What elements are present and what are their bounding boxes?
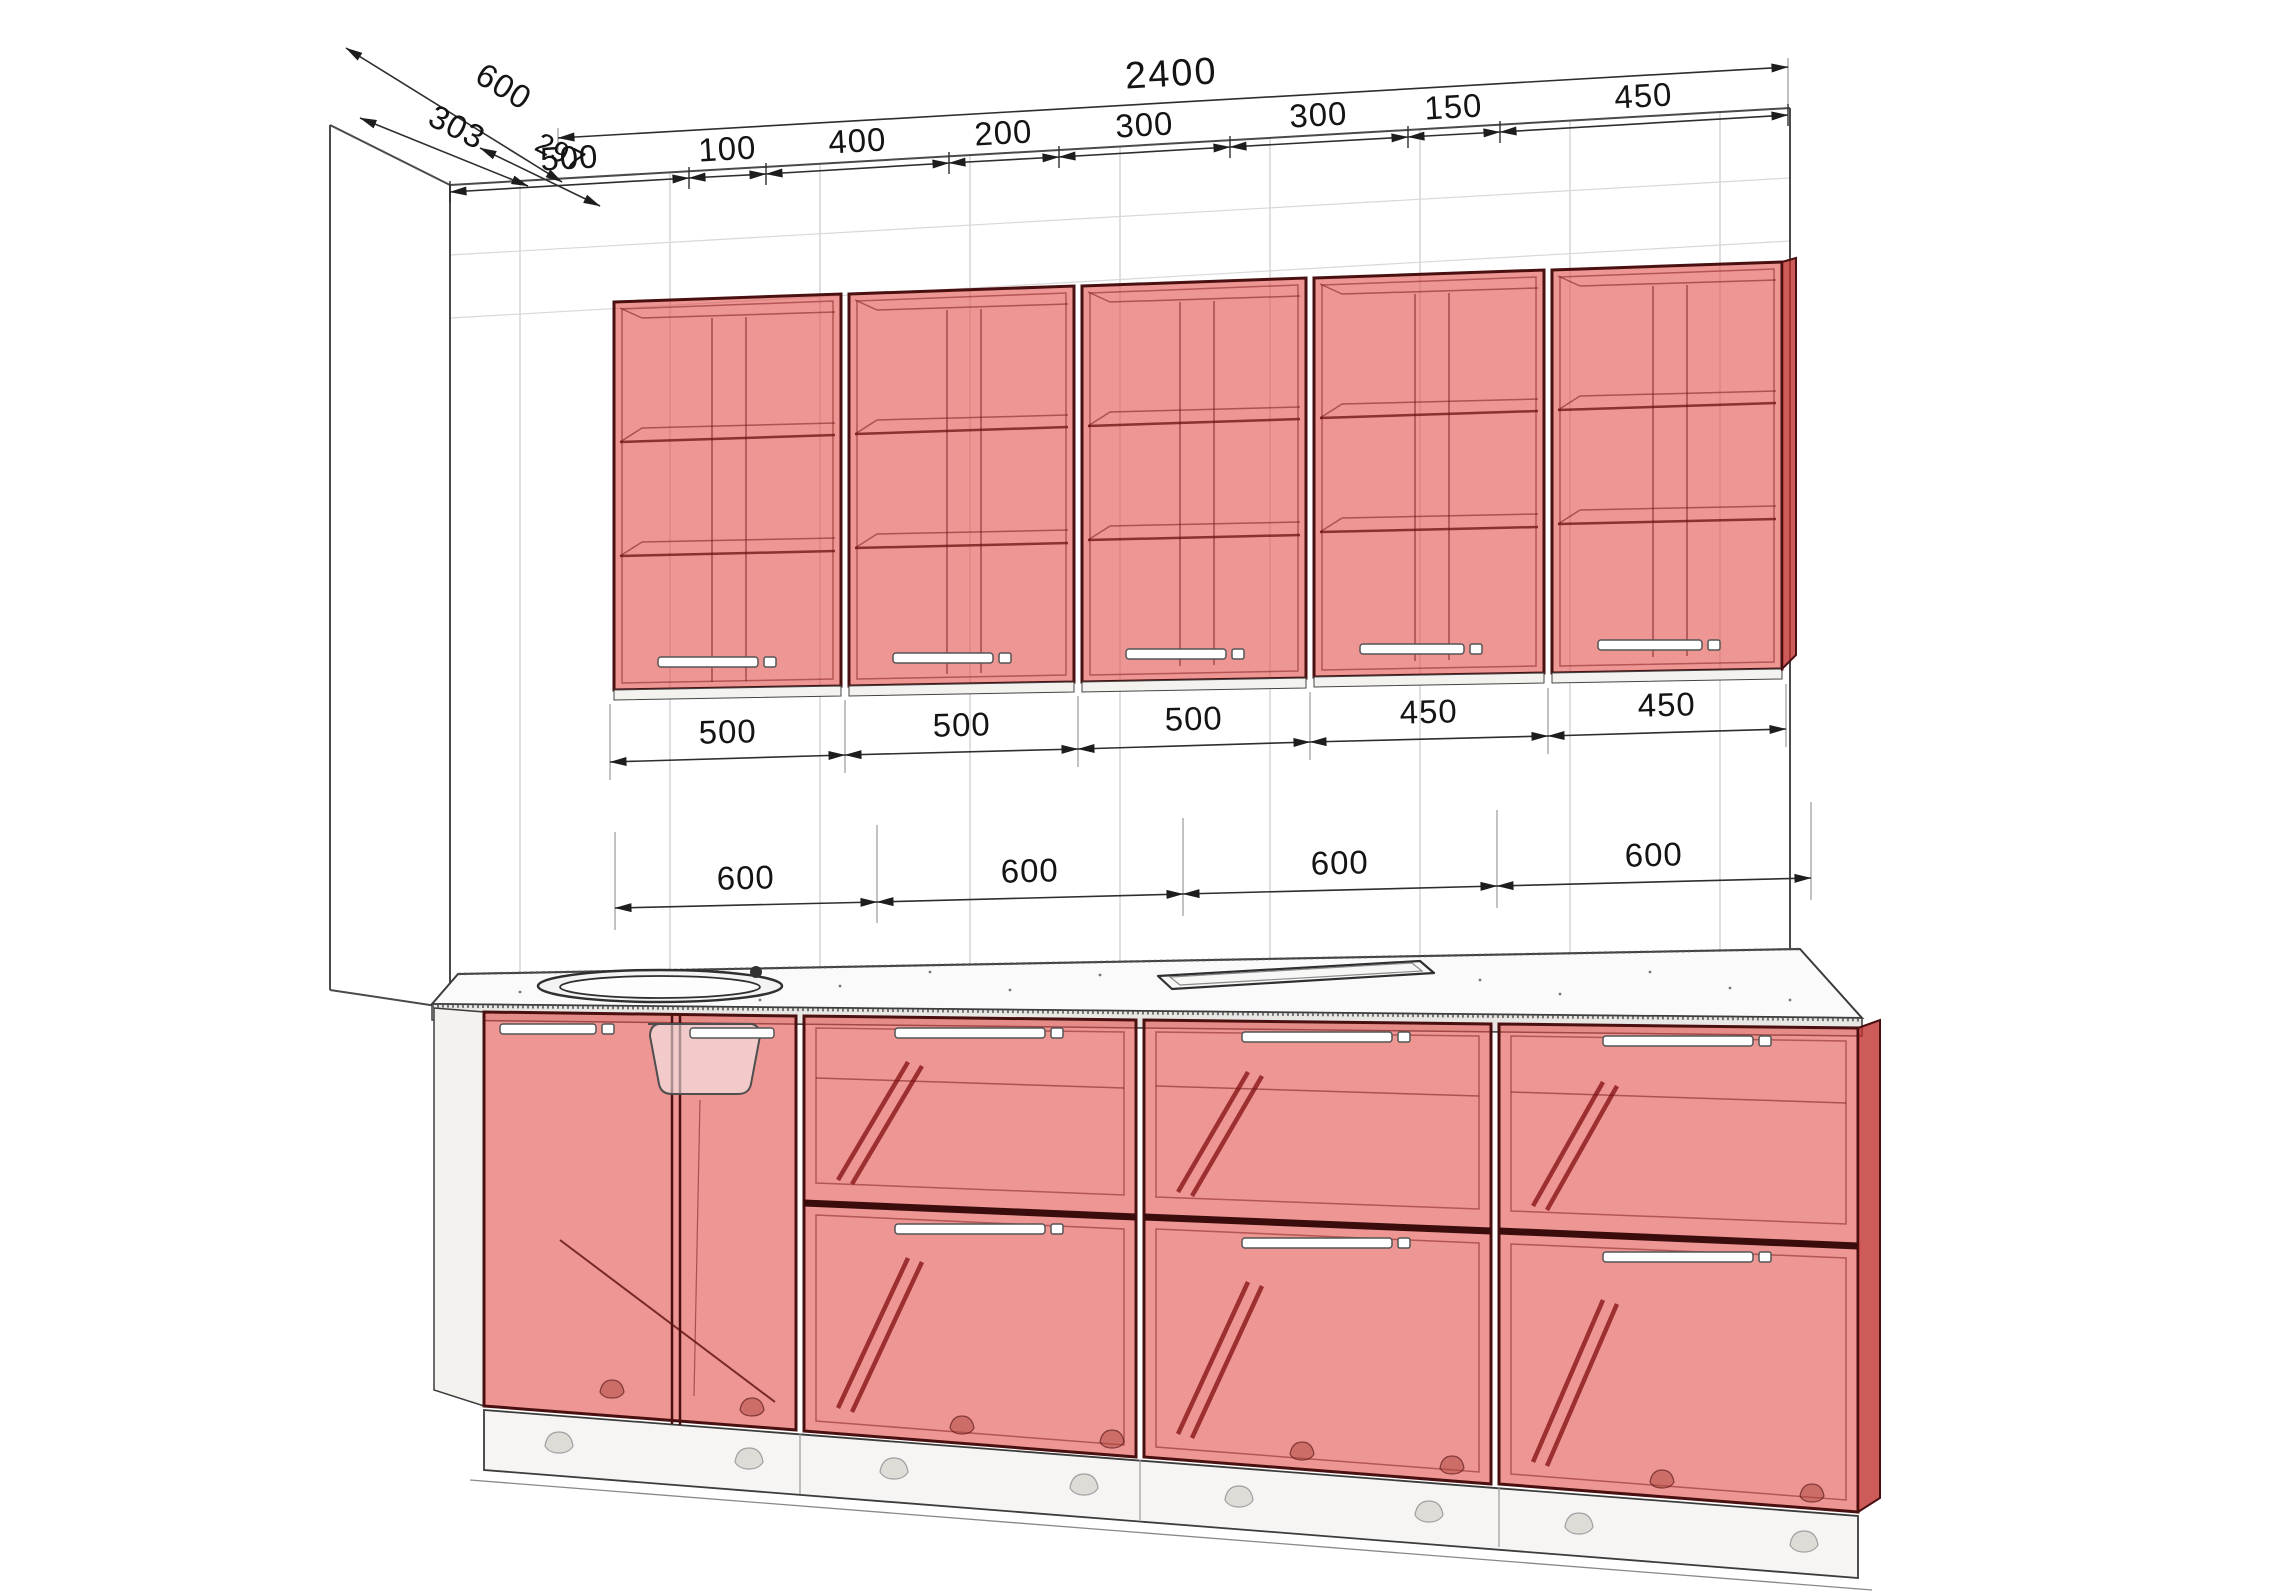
base-cabinet-3-drawers — [1144, 1020, 1491, 1484]
dim-top-segment-2: 100 — [697, 128, 757, 168]
dim-top-segment-3: 400 — [827, 120, 887, 160]
base-cabinet-4-drawers — [1499, 1020, 1880, 1512]
door-handle — [658, 657, 758, 667]
upper-cabinets — [614, 258, 1796, 700]
dim-top-segment-6: 300 — [1288, 94, 1348, 134]
dim-top-segment-5: 300 — [1114, 104, 1174, 144]
door-handle — [1126, 649, 1226, 659]
dim-top-segment-4: 200 — [973, 112, 1033, 152]
base-cabinet-2-drawers — [804, 1016, 1136, 1457]
base-cabinet-1-sink — [484, 1012, 796, 1430]
kitchen-drawing-canvas: 2400 500 100 400 200 300 300 150 450 — [0, 0, 2272, 1596]
door-handle — [690, 1028, 774, 1038]
drawer-handle — [895, 1028, 1045, 1038]
upper-cabinet-2 — [849, 286, 1074, 696]
drawer-handle — [1242, 1238, 1392, 1248]
dim-upper-width-5: 450 — [1637, 685, 1696, 724]
door-handle — [1360, 644, 1464, 654]
dim-base-width-4: 600 — [1624, 835, 1683, 873]
drawer-handle — [1242, 1032, 1392, 1042]
dim-overall-width: 2400 — [1124, 50, 1219, 97]
door-handle — [500, 1024, 596, 1034]
dim-upper-width-1: 500 — [698, 712, 757, 751]
upper-cabinet-3 — [1082, 278, 1306, 692]
dim-upper-width-2: 500 — [932, 705, 991, 744]
dim-base-width-2: 600 — [1000, 851, 1059, 889]
door-handle — [893, 653, 993, 663]
dim-base-width-1: 600 — [716, 858, 775, 896]
upper-cabinet-1 — [614, 294, 841, 700]
base-left-side-panel — [434, 1008, 484, 1406]
upper-cabinet-4 — [1314, 270, 1544, 687]
dim-top-segment-8: 450 — [1613, 75, 1673, 115]
upper-cabinet-right-side — [1782, 258, 1796, 669]
drawer-handle — [895, 1224, 1045, 1234]
drawer-handle — [1603, 1036, 1753, 1046]
dim-top-segment-7: 150 — [1423, 86, 1483, 126]
upper-cabinet-5 — [1552, 258, 1796, 683]
dim-upper-width-3: 500 — [1164, 699, 1223, 738]
dim-upper-width-4: 450 — [1399, 692, 1458, 731]
door-handle — [1598, 640, 1702, 650]
base-cabinet-right-side — [1858, 1020, 1880, 1512]
drawer-handle — [1603, 1252, 1753, 1262]
dim-base-width-3: 600 — [1310, 843, 1369, 881]
faucet-base — [750, 966, 762, 978]
kitchen-elevation-diagram: 2400 500 100 400 200 300 300 150 450 — [0, 0, 2272, 1596]
